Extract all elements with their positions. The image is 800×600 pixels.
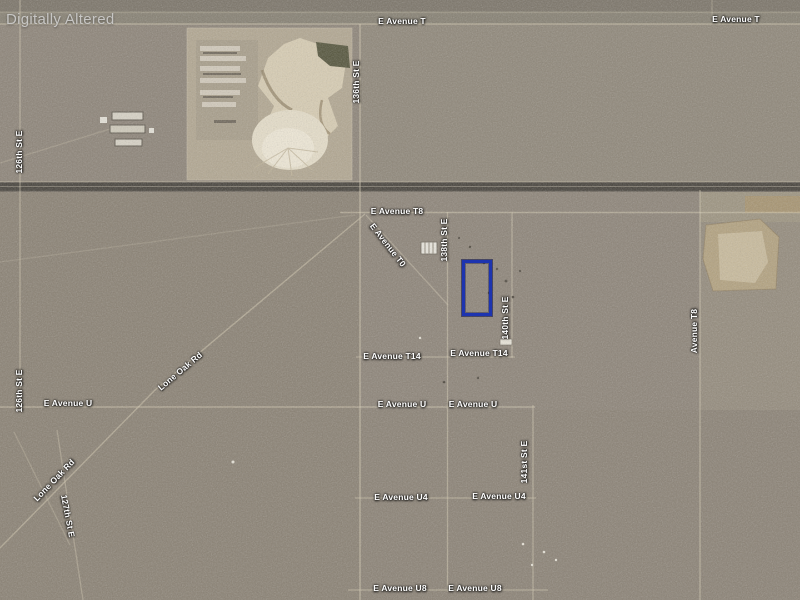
road-label: 140th St E bbox=[500, 296, 510, 339]
watermark: Digitally Altered bbox=[6, 11, 114, 28]
road-label: 126th St E bbox=[14, 369, 24, 412]
parcel-outline bbox=[462, 260, 492, 316]
map-canvas[interactable]: E Avenue TE Avenue T136th St E126th St E… bbox=[0, 0, 800, 600]
road-label: 138th St E bbox=[439, 218, 449, 261]
road-label: E Avenue T14 bbox=[450, 348, 508, 358]
road-label: E Avenue T8 bbox=[371, 206, 424, 216]
road-labels-layer: E Avenue TE Avenue T136th St E126th St E… bbox=[0, 0, 800, 600]
road-label: 126th St E bbox=[14, 130, 24, 173]
road-label: E Avenue U4 bbox=[374, 492, 428, 502]
road-label: E Avenue T bbox=[378, 16, 426, 26]
road-label: E Avenue U bbox=[449, 399, 498, 409]
road-label: Avenue T8 bbox=[689, 309, 699, 353]
road-label: 136th St E bbox=[351, 60, 361, 103]
road-label: E Avenue U bbox=[44, 398, 93, 408]
road-label: E Avenue T14 bbox=[363, 351, 421, 361]
road-label: Lone Oak Rd bbox=[31, 457, 76, 503]
road-label: E Avenue U bbox=[378, 399, 427, 409]
road-label: 127th St E bbox=[59, 494, 77, 538]
road-label: E Avenue T bbox=[712, 14, 760, 24]
road-label: E Avenue U8 bbox=[448, 583, 502, 593]
road-label: E Avenue T0 bbox=[368, 221, 408, 269]
road-label: Lone Oak Rd bbox=[156, 350, 204, 393]
road-label: E Avenue U4 bbox=[472, 491, 526, 501]
road-label: 141st St E bbox=[519, 441, 529, 484]
road-label: E Avenue U8 bbox=[373, 583, 427, 593]
